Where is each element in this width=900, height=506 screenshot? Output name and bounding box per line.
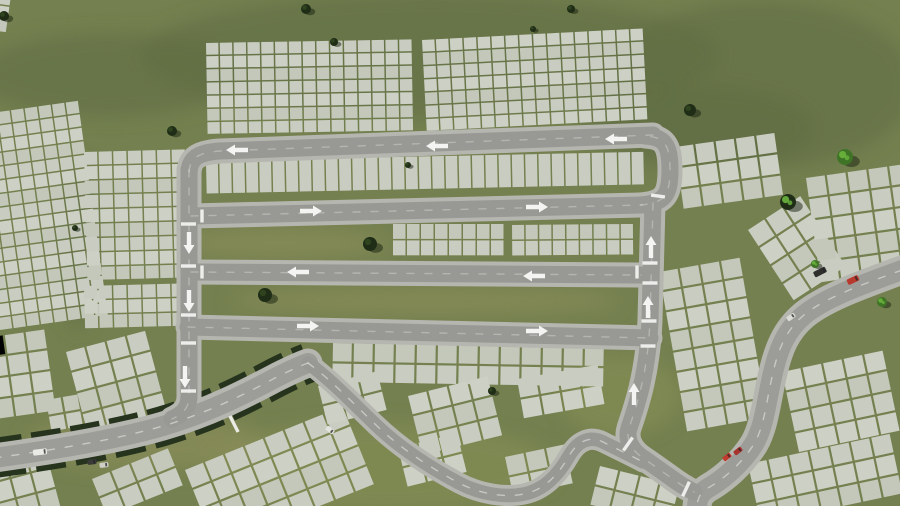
zone-tile (634, 108, 647, 120)
zone-tile (290, 107, 303, 119)
zone-tile (358, 40, 371, 52)
zone-tile (55, 226, 69, 240)
zone-tile (631, 42, 644, 54)
zone-tile (102, 266, 115, 279)
zone-tile (811, 405, 833, 427)
zone-tile (332, 120, 345, 132)
zone-tile (1, 234, 15, 248)
zone-tile (344, 54, 357, 66)
zone-tile (839, 484, 861, 506)
zone-tile (34, 270, 48, 284)
zone-tile (290, 121, 303, 133)
zone-tile (99, 300, 112, 313)
zone-tile (206, 56, 219, 68)
zone-tile (221, 122, 234, 134)
zone-tile (523, 113, 536, 125)
zone-tile (565, 153, 577, 186)
zone-tile (158, 207, 171, 220)
zone-tile (128, 299, 141, 312)
zone-tile (491, 224, 504, 239)
zone-tile (721, 258, 743, 279)
zone-tile (359, 93, 372, 105)
zone-tile (421, 240, 434, 255)
zone-tile (670, 329, 692, 350)
zone-tile (695, 142, 716, 164)
zone-tile (330, 54, 343, 66)
zone-tile (249, 121, 262, 133)
zone-tile (51, 295, 65, 309)
zone-tile (552, 154, 564, 187)
zone-tile (263, 121, 276, 133)
zone-tile (663, 289, 685, 310)
zone-tile (416, 365, 435, 384)
zone-tile (63, 280, 77, 294)
zone-tile (859, 479, 881, 501)
tree-highlight (0, 12, 5, 17)
zone-tile (707, 302, 729, 323)
crosswalk-bar (643, 261, 658, 264)
zone-tile (452, 77, 465, 89)
grass-patch (230, 287, 620, 315)
zone-tile (114, 314, 127, 327)
zone-tile (579, 110, 592, 122)
zone-tile (8, 353, 29, 374)
zone-tile (354, 343, 373, 362)
zone-tile (407, 224, 420, 239)
zone-tile (233, 160, 245, 193)
zone-tile (561, 32, 574, 44)
zone-tile (387, 106, 400, 118)
tree-highlight (260, 290, 266, 296)
zone-tile (565, 111, 578, 123)
zone-tile (207, 96, 220, 108)
zone-tile (345, 93, 358, 105)
zone-tile (472, 155, 484, 188)
zone-tile (854, 212, 875, 234)
zone-tile (550, 86, 563, 98)
zone-tile (424, 79, 437, 91)
zone-tile (874, 209, 895, 231)
zone-tile (142, 284, 155, 297)
zone-tile (303, 67, 316, 79)
zone-tile (344, 40, 357, 52)
zone-tile (38, 105, 52, 119)
zone-tile (567, 240, 579, 255)
zone-tile (630, 28, 643, 40)
zone-tile (128, 165, 141, 178)
zone-tile (399, 39, 412, 51)
zone-tile (206, 43, 219, 55)
zone-tile (17, 149, 31, 163)
zone-tile (289, 81, 302, 93)
zone-tile (331, 107, 344, 119)
zone-tile (0, 207, 11, 221)
tree-highlight (331, 39, 335, 43)
zone-tile (423, 66, 436, 78)
zone-tile (562, 58, 575, 70)
zone-tile (547, 33, 560, 45)
tree-highlight (531, 27, 534, 30)
zone-tile (219, 160, 231, 193)
zone-tile (480, 89, 493, 101)
zone-tile (739, 157, 760, 179)
zone-tile (114, 299, 127, 312)
zone-tile (553, 241, 565, 256)
zone-tile (405, 157, 417, 190)
zone-tile (393, 240, 406, 255)
zone-tile (47, 268, 61, 282)
zone-tile (344, 67, 357, 79)
zone-tile (290, 94, 303, 106)
zone-tile (61, 266, 75, 280)
tree-highlight (815, 263, 817, 265)
zone-tile (145, 236, 158, 249)
zone-tile (617, 42, 630, 54)
zone-tile (701, 386, 723, 407)
zone-tile (493, 62, 506, 74)
zone-tile (500, 366, 519, 385)
zone-tile (276, 108, 289, 120)
zone-tile (421, 224, 434, 239)
zone-tile (75, 264, 89, 278)
zone-tile (877, 230, 898, 252)
zone-tile (289, 41, 302, 53)
zone-tile (317, 94, 330, 106)
zone-tile (3, 151, 17, 165)
zone-tile (143, 313, 156, 326)
zone-tile (22, 189, 36, 203)
zone-tile (425, 105, 438, 117)
zone-tile (304, 94, 317, 106)
zone-tile (864, 351, 886, 373)
zone-tile (705, 406, 727, 427)
zone-tile (234, 56, 247, 68)
zone-tile (15, 135, 29, 149)
zone-tile (99, 166, 112, 179)
zone-tile (855, 459, 877, 481)
zone-tile (331, 93, 344, 105)
zone-tile (505, 35, 518, 47)
zone-tile (247, 42, 260, 54)
zone-tile (814, 468, 836, 490)
zone-tile (494, 88, 507, 100)
zone-tile (158, 193, 171, 206)
zone-tile (304, 120, 317, 132)
zone-tile (386, 79, 399, 91)
zone-tile (158, 179, 171, 192)
zone-tile (735, 339, 757, 360)
zone-tile (871, 434, 893, 456)
zone-tile (359, 119, 372, 131)
zone-tile (317, 80, 330, 92)
zone-tile (690, 326, 712, 347)
zone-tile (16, 245, 30, 259)
zone-tile (44, 145, 58, 159)
zone-tile (113, 285, 126, 298)
tree-highlight (845, 155, 850, 160)
zone-tile (358, 67, 371, 79)
zone-tile (607, 224, 619, 239)
zone-tile (454, 117, 467, 129)
zone-tile (512, 241, 524, 256)
zone-tile (160, 265, 173, 278)
tree-highlight (489, 388, 493, 392)
zone-tile (535, 73, 548, 85)
zone-tile (3, 247, 17, 261)
zone-tile (694, 346, 716, 367)
zone-tile (24, 203, 38, 217)
zone-tile (31, 371, 52, 392)
zone-tile (157, 284, 170, 297)
zone-tile (719, 160, 740, 182)
zone-tile (816, 425, 838, 447)
zone-tile (372, 40, 385, 52)
zone-tile (159, 222, 172, 235)
zone-tile (375, 344, 394, 363)
zone-tile (701, 184, 722, 206)
zone-tile (605, 69, 618, 81)
zone-tile (507, 61, 520, 73)
zone-tile (521, 396, 543, 418)
zone-tile (869, 371, 891, 393)
zone-tile (578, 153, 590, 186)
zone-tile (830, 194, 851, 216)
zone-tile (562, 45, 575, 57)
zone-tile (25, 107, 39, 121)
zone-tile (129, 208, 142, 221)
zone-tile (698, 163, 719, 185)
zone-tile (58, 143, 72, 157)
game-viewport[interactable] (0, 0, 900, 506)
zone-tile (26, 330, 47, 351)
zone-tile (773, 476, 795, 498)
zone-tile (14, 232, 28, 246)
zone-tile (100, 223, 113, 236)
zone-tile (358, 80, 371, 92)
zone-tile (393, 224, 406, 239)
zone-tile (303, 81, 316, 93)
zone-tile (157, 298, 170, 311)
zone-tile (575, 45, 588, 57)
zone-tile (541, 393, 563, 415)
zone-tile (53, 309, 67, 323)
zone-tile (852, 396, 874, 418)
zone-tile (437, 52, 450, 64)
zone-tile (449, 224, 462, 239)
zone-tile (143, 165, 156, 178)
zone-tile (85, 180, 98, 193)
zone-tile (607, 240, 619, 255)
zone-tile (480, 76, 493, 88)
zone-tile (602, 30, 615, 42)
zone-tile (683, 285, 705, 306)
zone-tile (492, 49, 505, 61)
city-map-canvas[interactable] (0, 0, 900, 506)
zone-tile (345, 120, 358, 132)
zone-tile (73, 251, 87, 265)
zone-tile (275, 42, 288, 54)
zone-tile (67, 211, 81, 225)
zone-tile (507, 75, 520, 87)
zone-tile (580, 240, 592, 255)
zone-tile (114, 180, 127, 193)
zone-tile (876, 454, 898, 476)
zone-tile (844, 355, 866, 377)
crosswalk-bar (181, 222, 196, 225)
zone-tile (28, 134, 42, 148)
zone-tile (815, 239, 836, 261)
zone-tile (534, 60, 547, 72)
zone-tile (207, 82, 220, 94)
zone-tile (465, 64, 478, 76)
zone-tile (812, 218, 833, 240)
zone-tile (331, 80, 344, 92)
zone-tile (379, 157, 391, 190)
zone-tile (101, 238, 114, 251)
zone-tile (728, 298, 750, 319)
zone-tile (128, 151, 141, 164)
zone-tile (396, 344, 415, 363)
zone-tile (276, 121, 289, 133)
zone-tile (248, 95, 261, 107)
zone-tile (12, 314, 26, 328)
zone-tile (526, 225, 538, 240)
zone-tile (521, 74, 534, 86)
crosswalk-bar (643, 281, 658, 284)
zone-tile (221, 95, 234, 107)
zone-tile (32, 160, 46, 174)
zone-tile (11, 205, 25, 219)
zone-tile (303, 41, 316, 53)
zone-tile (85, 195, 98, 208)
zone-tile (275, 68, 288, 80)
zone-tile (44, 241, 58, 255)
zone-tile (742, 178, 763, 200)
zone-tile (752, 481, 774, 503)
zone-tile (566, 224, 578, 239)
zone-tile (318, 120, 331, 132)
zone-tile (395, 365, 414, 384)
zone-tile (438, 78, 451, 90)
zone-tile (19, 162, 33, 176)
zone-tile (234, 82, 247, 94)
zone-tile (791, 409, 813, 431)
zone-tile (372, 66, 385, 78)
zone-tile (621, 224, 633, 239)
zone-tile (437, 365, 456, 384)
zone-tile (10, 301, 24, 315)
zone-tile (538, 372, 560, 394)
zone-tile (48, 172, 62, 186)
zone-tile (438, 345, 457, 364)
zone-tile (499, 155, 511, 188)
zone-tile (221, 109, 234, 121)
zone-tile (7, 178, 21, 192)
zone-tile (419, 156, 431, 189)
zone-tile (86, 224, 99, 237)
zone-tile (63, 394, 80, 411)
tree-highlight (302, 5, 307, 10)
zone-tile (207, 109, 220, 121)
zone-tile (459, 155, 471, 188)
zone-tile (359, 106, 372, 118)
zone-tile (50, 185, 64, 199)
zone-tile (26, 216, 40, 230)
zone-tile (425, 92, 438, 104)
zone-tile (533, 34, 546, 46)
zone-tile (550, 99, 563, 111)
zone-tile (677, 370, 699, 391)
zone-tile (451, 64, 464, 76)
zone-tile (84, 152, 97, 165)
zone-tile (87, 267, 100, 280)
zone-tile (1, 137, 15, 151)
zone-tile (436, 39, 449, 51)
zone-tile (207, 122, 220, 134)
zone-tile (37, 297, 51, 311)
zone-tile (144, 222, 157, 235)
zone-tile (632, 55, 645, 67)
zone-tile (248, 55, 261, 67)
zone-tile (807, 384, 829, 406)
zone-tile (827, 380, 849, 402)
zone-tile (793, 472, 815, 494)
zone-tile (422, 39, 435, 51)
zone-tile (289, 68, 302, 80)
tree-highlight (73, 226, 76, 229)
zone-tile (594, 240, 606, 255)
zone-tile (331, 67, 344, 79)
zone-tile (144, 193, 157, 206)
zone-tile (13, 122, 27, 136)
zone-tile (877, 412, 899, 434)
zone-tile (400, 79, 413, 91)
zone-tile (450, 51, 463, 63)
zone-tile (42, 132, 56, 146)
zone-tile (562, 389, 584, 411)
grass-patch (172, 228, 388, 258)
zone-tile (871, 188, 892, 210)
zone-tile (144, 208, 157, 221)
zone-tile (836, 236, 857, 258)
zone-tile (563, 72, 576, 84)
zone-tile (387, 119, 400, 131)
zone-tile (86, 209, 99, 222)
zone-tile (116, 252, 129, 265)
zone-tile (810, 447, 832, 469)
zone-tile (261, 55, 274, 67)
zone-tile (426, 118, 439, 130)
zone-tile (130, 251, 143, 264)
zone-tile (715, 342, 737, 363)
zone-tile (220, 56, 233, 68)
zone-tile (6, 274, 20, 288)
zone-tile (762, 176, 783, 198)
zone-tile (477, 224, 490, 239)
crosswalk-bar (181, 313, 196, 316)
zone-tile (30, 243, 44, 257)
zone-tile (261, 42, 274, 54)
zone-tile (449, 240, 462, 255)
zone-tile (5, 164, 19, 178)
zone-tile (857, 233, 878, 255)
zone-tile (317, 54, 330, 66)
zone-tile (0, 124, 13, 138)
crosswalk-bar (635, 266, 638, 279)
crosswalk-bar (181, 389, 196, 392)
zone-tile (536, 86, 549, 98)
zone-tile (99, 151, 112, 164)
